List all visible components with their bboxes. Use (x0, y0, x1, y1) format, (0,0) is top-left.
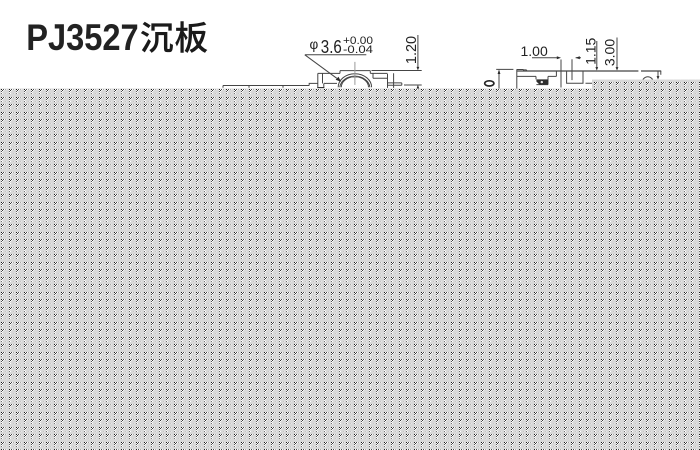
svg-text:1.15: 1.15 (583, 37, 599, 64)
svg-text:3.6: 3.6 (321, 36, 342, 57)
svg-text:φ: φ (310, 37, 319, 52)
svg-text:3.00: 3.00 (602, 39, 618, 66)
svg-text:1.00: 1.00 (521, 43, 548, 59)
svg-text:PJ3527: PJ3527 (26, 16, 139, 58)
svg-text:-0.04: -0.04 (343, 44, 373, 56)
svg-text:1.20: 1.20 (404, 36, 420, 64)
